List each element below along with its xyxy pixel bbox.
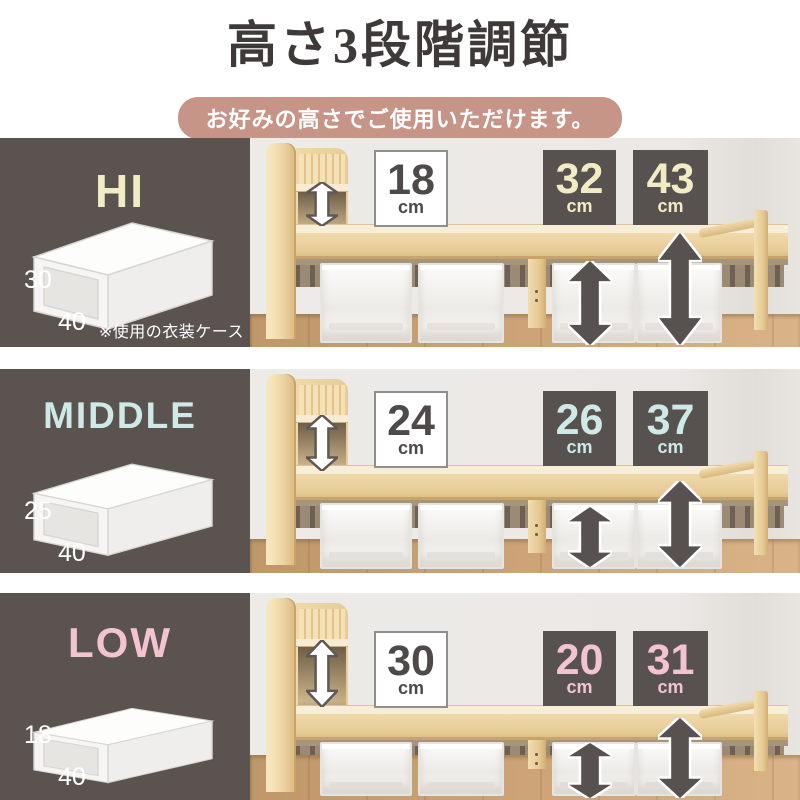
measurement-unit: cm bbox=[398, 681, 424, 696]
underbed-case bbox=[320, 742, 412, 796]
measurement-value: 31 bbox=[647, 642, 695, 679]
underbed-case bbox=[320, 503, 412, 569]
measurement-value: 32 bbox=[556, 161, 604, 198]
measurement-value: 30 bbox=[387, 643, 435, 680]
headboard-beadboard bbox=[299, 609, 345, 639]
height-mode-label: HI bbox=[0, 164, 240, 218]
headboard-gap-measurement: 24 cm bbox=[374, 391, 448, 468]
measurement-unit: cm bbox=[657, 680, 683, 695]
headboard-gap-arrow-icon bbox=[306, 182, 338, 226]
storage-case-icon bbox=[22, 211, 222, 331]
bed-side-rail bbox=[266, 233, 788, 259]
underbed-clearance-arrow-icon bbox=[658, 481, 702, 567]
measurement-unit: cm bbox=[398, 441, 424, 456]
measurement-value: 18 bbox=[387, 162, 435, 199]
headboard-gap-arrow-icon bbox=[306, 415, 338, 471]
headboard-beadboard bbox=[299, 154, 345, 184]
subtitle-badge: お好みの高さでご使用いただけます。 bbox=[178, 97, 623, 139]
measurement-value: 26 bbox=[556, 402, 604, 439]
underbed-case bbox=[418, 742, 504, 796]
low-panel: LOW 18 40 bbox=[0, 593, 250, 800]
bed-center-leg bbox=[528, 740, 546, 769]
middle-bed-photo: 24 cm 26 cm 37 cm bbox=[250, 369, 800, 573]
case-height-dim: 25 bbox=[24, 497, 52, 526]
underbed-case bbox=[320, 263, 412, 343]
case-depth-dim: 40 bbox=[58, 539, 86, 568]
storage-case-illustration bbox=[22, 664, 222, 784]
height-mode-label: LOW bbox=[0, 619, 240, 667]
headboard-gap-measurement: 30 cm bbox=[374, 631, 448, 708]
section-hi: HI 30 40 ※使用の衣装ケース bbox=[0, 138, 800, 347]
headboard-post bbox=[266, 374, 296, 565]
underbed-clearance-arrow-icon bbox=[568, 743, 612, 798]
case-depth-dim: 40 bbox=[58, 308, 86, 337]
storage-case-icon bbox=[22, 454, 222, 557]
underbed-end-measurement: 37 cm bbox=[633, 391, 708, 466]
bed-side-rail bbox=[266, 474, 788, 500]
underbed-clearance-arrow-icon bbox=[658, 233, 702, 345]
page-title: 高さ3段階調節 bbox=[0, 0, 800, 73]
storage-case-illustration bbox=[22, 211, 222, 331]
footboard-post bbox=[754, 210, 768, 330]
measurement-unit: cm bbox=[566, 199, 592, 214]
headboard-gap-measurement: 18 cm bbox=[374, 150, 448, 227]
measurement-unit: cm bbox=[566, 440, 592, 455]
underbed-side-measurement: 26 cm bbox=[543, 391, 616, 466]
footboard-post bbox=[754, 451, 768, 555]
measurement-unit: cm bbox=[657, 199, 683, 214]
underbed-clearance-arrow-icon bbox=[568, 261, 612, 345]
measurement-value: 37 bbox=[647, 402, 695, 439]
footboard-post bbox=[754, 691, 768, 771]
headboard-post bbox=[266, 598, 296, 792]
section-low: LOW 18 40 bbox=[0, 593, 800, 800]
case-depth-dim: 40 bbox=[58, 763, 86, 792]
low-bed-photo: 30 cm 20 cm 31 cm bbox=[250, 593, 800, 800]
headboard-beadboard bbox=[299, 385, 345, 415]
middle-panel: MIDDLE 25 40 bbox=[0, 369, 250, 573]
hi-bed-photo: 18 cm 32 cm 43 cm bbox=[250, 138, 800, 347]
underbed-side-measurement: 32 cm bbox=[543, 150, 616, 225]
measurement-unit: cm bbox=[657, 440, 683, 455]
bed-center-leg bbox=[528, 500, 546, 553]
bed-side-rail bbox=[266, 714, 788, 740]
measurement-unit: cm bbox=[398, 200, 424, 215]
bed-center-leg bbox=[528, 259, 546, 328]
case-height-dim: 30 bbox=[24, 266, 52, 295]
underbed-end-measurement: 43 cm bbox=[633, 150, 708, 225]
case-usage-note: ※使用の衣装ケース bbox=[99, 318, 244, 342]
case-height-dim: 18 bbox=[24, 721, 52, 750]
hi-panel: HI 30 40 ※使用の衣装ケース bbox=[0, 138, 250, 347]
underbed-end-measurement: 31 cm bbox=[633, 631, 708, 706]
storage-case-icon bbox=[22, 700, 222, 784]
measurement-value: 24 bbox=[387, 403, 435, 440]
underbed-case bbox=[418, 263, 504, 343]
section-middle: MIDDLE 25 40 bbox=[0, 369, 800, 573]
measurement-value: 20 bbox=[556, 642, 604, 679]
underbed-clearance-arrow-icon bbox=[568, 507, 612, 567]
underbed-clearance-arrow-icon bbox=[658, 718, 702, 798]
headboard-post bbox=[266, 143, 296, 339]
product-infographic: 高さ3段階調節 お好みの高さでご使用いただけます。 HI 30 40 ※使用の衣… bbox=[0, 0, 800, 800]
measurement-value: 43 bbox=[647, 161, 695, 198]
header: 高さ3段階調節 お好みの高さでご使用いただけます。 bbox=[0, 0, 800, 138]
height-mode-label: MIDDLE bbox=[0, 395, 240, 437]
underbed-side-measurement: 20 cm bbox=[543, 631, 616, 706]
underbed-case bbox=[418, 503, 504, 569]
measurement-unit: cm bbox=[566, 680, 592, 695]
storage-case-illustration bbox=[22, 437, 222, 557]
headboard-gap-arrow-icon bbox=[306, 640, 338, 707]
